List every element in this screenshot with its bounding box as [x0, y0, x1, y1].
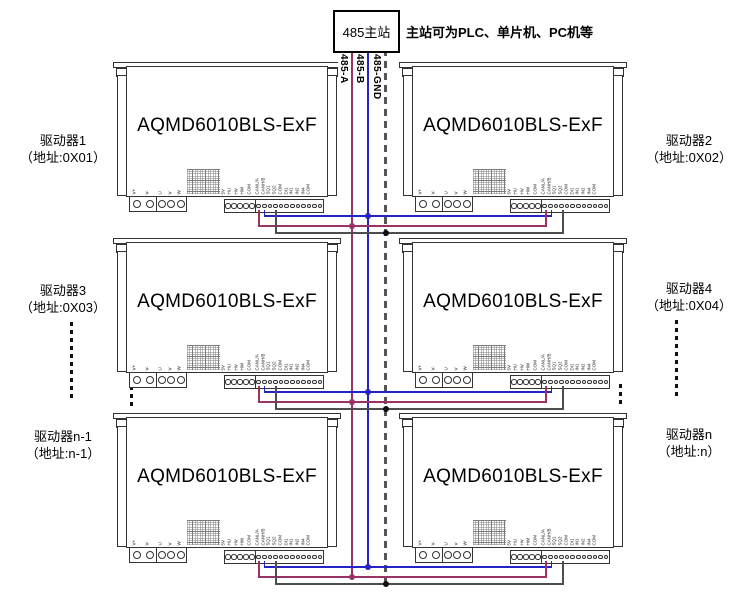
terminal-hole — [301, 380, 306, 385]
terminal-hole — [262, 204, 267, 209]
terminal-hole — [554, 555, 559, 560]
driver-model-label: AQMD6010BLS-ExF — [127, 466, 327, 488]
terminal-hole — [177, 376, 185, 384]
terminal-hole — [249, 554, 255, 560]
terminal-hole — [158, 551, 166, 559]
driver4-name: 驱动器4 — [633, 280, 745, 297]
terminal-hole — [312, 204, 317, 209]
terminal-hole — [307, 204, 312, 209]
driver-body: AQMD6010BLS-ExF V+V-UVW 5VHUHVHWCOM CANL… — [412, 242, 614, 373]
pin-label: IN1 — [290, 363, 295, 370]
power-terminal-block — [129, 196, 157, 212]
row1-stub-right-485b — [551, 210, 553, 217]
terminal-hole — [554, 380, 559, 385]
terminal-hole — [565, 380, 570, 385]
motor-terminal-block — [156, 547, 187, 563]
terminal-hole — [587, 555, 592, 560]
terminal-hole — [419, 551, 427, 559]
terminal-hole — [268, 380, 273, 385]
driver-body: AQMD6010BLS-ExF V+V-UVW 5VHUHVHWCOM CANL… — [126, 417, 328, 548]
row3-wire-485g — [275, 583, 562, 585]
terminal-hole — [523, 554, 529, 560]
pin-label: SQ2 — [559, 536, 564, 545]
row2-wire-485g — [275, 408, 562, 410]
terminal-hole — [529, 203, 535, 209]
terminal-hole — [167, 200, 175, 208]
row2-stub-right-485g — [562, 386, 564, 410]
bus-label-485b: 485-B — [354, 53, 365, 85]
terminal-hole — [587, 380, 592, 385]
pin-label: CANL/A — [542, 178, 547, 194]
terminal-hole — [146, 200, 154, 208]
terminal-hole — [290, 555, 295, 560]
pin-label: CANL/A — [256, 529, 261, 545]
terminal-hole — [535, 379, 541, 385]
driver-module-4: AQMD6010BLS-ExF V+V-UVW 5VHUHVHWCOM CANL… — [399, 238, 627, 390]
terminal-hole — [554, 204, 559, 209]
terminal-hole — [256, 380, 261, 385]
terminal-hole — [432, 376, 440, 384]
row1-stub-left-485b — [264, 210, 266, 217]
ellipsis-left-margin — [70, 322, 73, 400]
signal-pin-labels: CANL/ACANH/BSQ1SQ2COMDI1IN1IN2IN4COM — [127, 518, 327, 546]
terminal-hole — [133, 376, 141, 384]
driver-model-label: AQMD6010BLS-ExF — [413, 466, 613, 488]
terminal-hole — [517, 554, 523, 560]
terminal-hole — [158, 200, 166, 208]
terminal-hole — [559, 204, 564, 209]
row1-stub-left-485g — [275, 210, 277, 234]
terminal-hole — [419, 200, 427, 208]
signal-terminal-block — [255, 375, 324, 389]
row3-stub-right-485b — [551, 561, 553, 568]
driver3-address: （地址:0X03） — [7, 299, 119, 316]
terminal-hole — [268, 204, 273, 209]
signal-pin-labels: CANL/ACANH/BSQ1SQ2COMDI1IN1IN2IN4COM — [413, 343, 613, 371]
driver3-address-label: 驱动器3 （地址:0X03） — [7, 282, 119, 316]
junction-dot-485a — [349, 223, 355, 229]
terminal-hole — [273, 380, 278, 385]
junction-dot-485g — [383, 230, 389, 236]
pin-label: COM — [564, 360, 569, 371]
pin-label: IN1 — [576, 538, 581, 545]
terminal-hole — [296, 204, 301, 209]
junction-dot-485a — [349, 399, 355, 405]
terminal-hole — [517, 379, 523, 385]
terminal-hole — [133, 551, 141, 559]
driver-module-5: AQMD6010BLS-ExF V+V-UVW 5VHUHVHWCOM CANL… — [113, 413, 341, 565]
row3-stub-left-485b — [264, 561, 266, 568]
pin-label: IN2 — [295, 538, 300, 545]
terminal-hole — [559, 555, 564, 560]
motor-terminal-block — [442, 196, 473, 212]
row2-stub-right-485a — [545, 386, 547, 403]
row1-stub-right-485a — [545, 210, 547, 227]
driver1-name: 驱动器1 — [7, 132, 119, 149]
pin-label: COM — [307, 535, 312, 546]
row1-stub-right-485g — [562, 210, 564, 234]
junction-dot-485b — [365, 389, 371, 395]
pin-label: IN1 — [290, 538, 295, 545]
terminal-hole — [268, 555, 273, 560]
pin-label: COM — [307, 360, 312, 371]
terminal-hole — [598, 204, 603, 209]
terminal-hole — [284, 204, 289, 209]
terminal-hole — [273, 555, 278, 560]
pin-label: COM — [593, 184, 598, 195]
terminal-hole — [604, 204, 609, 209]
terminal-hole — [517, 203, 523, 209]
terminal-hole — [290, 380, 295, 385]
bus-label-485gnd: 485-GND — [371, 53, 382, 101]
terminal-hole — [593, 380, 598, 385]
terminal-hole — [307, 380, 312, 385]
bus-label-485a: 485-A — [338, 53, 349, 85]
pin-label: IN1 — [576, 363, 581, 370]
driver4-address: （地址:0X04） — [633, 297, 745, 314]
heatsink-wall-right — [613, 75, 623, 196]
terminal-hole — [133, 200, 141, 208]
terminal-hole — [570, 204, 575, 209]
terminal-hole — [296, 555, 301, 560]
row1-stub-left-485a — [258, 210, 260, 227]
terminal-hole — [570, 555, 575, 560]
terminal-hole — [576, 204, 581, 209]
driver-module-2: AQMD6010BLS-ExF V+V-UVW 5VHUHVHWCOM CANL… — [399, 62, 627, 214]
terminal-hole — [576, 555, 581, 560]
pin-label: IN2 — [295, 363, 300, 370]
driver-body: AQMD6010BLS-ExF V+V-UVW 5VHUHVHWCOM CANL… — [126, 242, 328, 373]
driver-n1-address: （地址:n-1） — [7, 445, 119, 462]
terminal-hole — [225, 203, 231, 209]
row3-stub-left-485a — [258, 561, 260, 578]
terminal-hole — [548, 204, 553, 209]
pin-label: CANL/A — [256, 178, 261, 194]
driver-n1-address-label: 驱动器n-1 （地址:n-1） — [7, 428, 119, 462]
terminal-hole — [529, 379, 535, 385]
terminal-hole — [312, 380, 317, 385]
terminal-hole — [231, 203, 237, 209]
terminal-hole — [296, 380, 301, 385]
driver-model-label: AQMD6010BLS-ExF — [127, 115, 327, 137]
driver3-name: 驱动器3 — [7, 282, 119, 299]
driver-n-address-label: 驱动器n （地址:n） — [633, 426, 745, 460]
row1-wire-485b — [264, 215, 551, 217]
pin-label: IN2 — [295, 187, 300, 194]
terminal-hole — [312, 555, 317, 560]
terminal-hole — [535, 554, 541, 560]
pin-label: COM — [278, 184, 283, 195]
row1-wire-485a — [258, 225, 545, 227]
pin-label: IN1 — [290, 187, 295, 194]
terminal-hole — [146, 551, 154, 559]
terminal-hole — [511, 554, 517, 560]
terminal-hole — [453, 376, 461, 384]
row2-stub-left-485g — [275, 386, 277, 410]
row2-wire-485a — [258, 401, 545, 403]
terminal-hole — [225, 379, 231, 385]
driver-module-3: AQMD6010BLS-ExF V+V-UVW 5VHUHVHWCOM CANL… — [113, 238, 341, 390]
terminal-hole — [576, 380, 581, 385]
pin-label: COM — [278, 360, 283, 371]
pin-label: IN2 — [581, 538, 586, 545]
motor-terminal-block — [442, 547, 473, 563]
driver-model-label: AQMD6010BLS-ExF — [127, 291, 327, 313]
terminal-hole — [249, 203, 255, 209]
row3-stub-right-485a — [545, 561, 547, 578]
terminal-hole — [167, 376, 175, 384]
terminal-hole — [565, 555, 570, 560]
terminal-hole — [444, 551, 452, 559]
terminal-hole — [231, 554, 237, 560]
ellipsis-right-margin — [675, 320, 678, 400]
terminal-hole — [237, 554, 243, 560]
row2-stub-left-485a — [258, 386, 260, 403]
row3-wire-485a — [258, 576, 545, 578]
driver-body: AQMD6010BLS-ExF V+V-UVW 5VHUHVHWCOM CANL… — [412, 417, 614, 548]
driver-module-1: AQMD6010BLS-ExF V+V-UVW 5VHUHVHWCOM CANL… — [113, 62, 341, 214]
row2-wire-485b — [264, 391, 551, 393]
terminal-hole — [598, 555, 603, 560]
terminal-hole — [548, 380, 553, 385]
pin-label: COM — [278, 535, 283, 546]
driver-body: AQMD6010BLS-ExF V+V-UVW 5VHUHVHWCOM CANL… — [412, 66, 614, 197]
pin-label: CANL/A — [542, 529, 547, 545]
terminal-hole — [444, 200, 452, 208]
pin-label: IN2 — [581, 363, 586, 370]
hall-terminal-block — [224, 375, 256, 389]
terminal-hole — [243, 554, 249, 560]
terminal-hole — [146, 376, 154, 384]
driver1-address: （地址:0X01） — [7, 149, 119, 166]
terminal-hole — [256, 204, 261, 209]
signal-pin-labels: CANL/ACANH/BSQ1SQ2COMDI1IN1IN2IN4COM — [127, 343, 327, 371]
terminal-hole — [290, 204, 295, 209]
terminal-hole — [318, 204, 323, 209]
power-terminal-block — [415, 547, 443, 563]
terminal-hole — [542, 555, 547, 560]
pin-label: COM — [307, 184, 312, 195]
terminal-hole — [604, 555, 609, 560]
terminal-hole — [256, 555, 261, 560]
power-terminal-block — [129, 372, 157, 388]
bus-line-485gnd — [384, 49, 387, 584]
hall-terminal-block — [510, 550, 542, 564]
terminal-hole — [237, 203, 243, 209]
pin-label: SQ2 — [559, 185, 564, 194]
terminal-hole — [262, 380, 267, 385]
terminal-hole — [284, 380, 289, 385]
hall-terminal-block — [510, 199, 542, 213]
driver-body: AQMD6010BLS-ExF V+V-UVW 5VHUHVHWCOM CANL… — [126, 66, 328, 197]
heatsink-wall-right — [327, 426, 337, 547]
terminal-hole — [587, 204, 592, 209]
driver-module-6: AQMD6010BLS-ExF V+V-UVW 5VHUHVHWCOM CANL… — [399, 413, 627, 565]
pin-label: COM — [593, 360, 598, 371]
terminal-hole — [262, 555, 267, 560]
terminal-hole — [542, 204, 547, 209]
driver2-name: 驱动器2 — [633, 132, 745, 149]
power-terminal-block — [415, 372, 443, 388]
driver-n-name: 驱动器n — [633, 426, 745, 443]
motor-terminal-block — [156, 372, 187, 388]
master-station-box: 485主站 — [333, 10, 400, 53]
terminal-hole — [542, 380, 547, 385]
terminal-hole — [582, 555, 587, 560]
terminal-hole — [243, 379, 249, 385]
terminal-hole — [444, 376, 452, 384]
terminal-hole — [523, 203, 529, 209]
hall-terminal-block — [510, 375, 542, 389]
signal-terminal-block — [255, 550, 324, 564]
driver4-address-label: 驱动器4 （地址:0X04） — [633, 280, 745, 314]
terminal-hole — [279, 380, 284, 385]
terminal-hole — [273, 204, 278, 209]
driver1-address-label: 驱动器1 （地址:0X01） — [7, 132, 119, 166]
hall-terminal-block — [224, 550, 256, 564]
terminal-hole — [279, 555, 284, 560]
terminal-hole — [231, 379, 237, 385]
signal-terminal-block — [255, 199, 324, 213]
terminal-hole — [237, 379, 243, 385]
bus-line-485a — [351, 49, 353, 577]
terminal-hole — [432, 551, 440, 559]
terminal-hole — [463, 200, 471, 208]
terminal-hole — [177, 200, 185, 208]
row2-stub-left-485b — [264, 386, 266, 393]
driver-n-address: （地址:n） — [633, 443, 745, 460]
terminal-hole — [559, 380, 564, 385]
pin-label: COM — [564, 535, 569, 546]
bus-line-485b — [367, 49, 369, 567]
terminal-hole — [432, 200, 440, 208]
master-station-note: 主站可为PLC、单片机、PC机等 — [406, 22, 593, 41]
driver2-address: （地址:0X02） — [633, 149, 745, 166]
signal-pin-labels: CANL/ACANH/BSQ1SQ2COMDI1IN1IN2IN4COM — [127, 167, 327, 195]
row3-stub-right-485g — [562, 561, 564, 585]
terminal-hole — [167, 551, 175, 559]
hall-terminal-block — [224, 199, 256, 213]
terminal-hole — [419, 376, 427, 384]
pin-label: IN1 — [576, 187, 581, 194]
terminal-hole — [565, 204, 570, 209]
terminal-hole — [604, 380, 609, 385]
heatsink-wall-right — [613, 251, 623, 372]
pin-label: IN2 — [581, 187, 586, 194]
terminal-hole — [582, 380, 587, 385]
pin-label: CANL/A — [256, 354, 261, 370]
terminal-hole — [249, 379, 255, 385]
master-station-label: 485主站 — [343, 22, 391, 41]
terminal-hole — [453, 551, 461, 559]
row3-stub-left-485g — [275, 561, 277, 585]
junction-dot-485b — [365, 213, 371, 219]
terminal-hole — [570, 380, 575, 385]
terminal-hole — [453, 200, 461, 208]
motor-terminal-block — [156, 196, 187, 212]
power-terminal-block — [129, 547, 157, 563]
power-terminal-block — [415, 196, 443, 212]
heatsink-wall-right — [613, 426, 623, 547]
terminal-hole — [529, 554, 535, 560]
signal-pin-labels: CANL/ACANH/BSQ1SQ2COMDI1IN1IN2IN4COM — [413, 518, 613, 546]
terminal-hole — [598, 380, 603, 385]
pin-label: SQ2 — [273, 536, 278, 545]
driver-n1-name: 驱动器n-1 — [7, 428, 119, 445]
pin-label: SQ2 — [273, 185, 278, 194]
signal-pin-labels: CANL/ACANH/BSQ1SQ2COMDI1IN1IN2IN4COM — [413, 167, 613, 195]
heatsink-wall-right — [327, 75, 337, 196]
terminal-hole — [511, 203, 517, 209]
row1-wire-485g — [275, 232, 562, 234]
terminal-hole — [593, 204, 598, 209]
junction-dot-485a — [349, 574, 355, 580]
pin-label: COM — [593, 535, 598, 546]
terminal-hole — [535, 203, 541, 209]
driver-model-label: AQMD6010BLS-ExF — [413, 291, 613, 313]
terminal-hole — [225, 554, 231, 560]
pin-label: COM — [564, 184, 569, 195]
rs485-network-diagram: 485主站 主站可为PLC、单片机、PC机等 485-A 485-B 485-G… — [0, 0, 750, 596]
terminal-hole — [523, 379, 529, 385]
terminal-hole — [301, 204, 306, 209]
junction-dot-485g — [383, 406, 389, 412]
terminal-hole — [301, 555, 306, 560]
terminal-hole — [243, 203, 249, 209]
terminal-hole — [284, 555, 289, 560]
terminal-hole — [582, 204, 587, 209]
terminal-hole — [463, 551, 471, 559]
junction-dot-485g — [383, 581, 389, 587]
pin-label: SQ2 — [273, 361, 278, 370]
terminal-hole — [158, 376, 166, 384]
row2-stub-right-485b — [551, 386, 553, 393]
junction-dot-485b — [365, 564, 371, 570]
terminal-hole — [548, 555, 553, 560]
pin-label: SQ2 — [559, 361, 564, 370]
pin-label: CANL/A — [542, 354, 547, 370]
heatsink-wall-right — [327, 251, 337, 372]
terminal-hole — [279, 204, 284, 209]
terminal-hole — [593, 555, 598, 560]
terminal-hole — [511, 379, 517, 385]
terminal-hole — [177, 551, 185, 559]
row3-wire-485b — [264, 566, 551, 568]
driver2-address-label: 驱动器2 （地址:0X02） — [633, 132, 745, 166]
driver-model-label: AQMD6010BLS-ExF — [413, 115, 613, 137]
terminal-hole — [318, 380, 323, 385]
motor-terminal-block — [442, 372, 473, 388]
terminal-hole — [463, 376, 471, 384]
terminal-hole — [307, 555, 312, 560]
terminal-hole — [318, 555, 323, 560]
